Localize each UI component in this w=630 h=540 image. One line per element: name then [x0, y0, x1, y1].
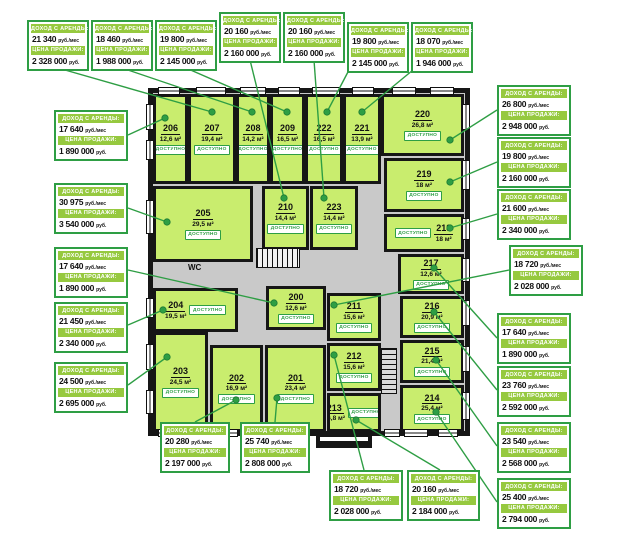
income-value: 21 340руб./мес: [31, 33, 85, 46]
price-value: 1 988 000руб.: [95, 55, 149, 68]
price-value: 2 145 000руб.: [351, 57, 405, 70]
income-label: ДОХОД С АРЕНДЫ:: [58, 114, 124, 123]
price-label: ЦЕНА ПРОДАЖИ:: [501, 392, 567, 401]
price-label: ЦЕНА ПРОДАЖИ:: [411, 496, 476, 505]
callout-room-205: ДОХОД С АРЕНДЫ: 30 975руб./мес ЦЕНА ПРОД…: [54, 183, 128, 234]
window-marker: [462, 300, 470, 326]
availability-badge: ДОСТУПНО: [316, 224, 352, 234]
price-label: ЦЕНА ПРОДАЖИ:: [58, 209, 124, 218]
floorplan-widget: 200 12,6 м² ДОСТУПНО 201 23,4 м² ДОСТУПН…: [0, 0, 630, 540]
income-value: 19 800руб./мес: [159, 33, 213, 46]
room-205[interactable]: 205 29,5 м² ДОСТУПНО: [153, 186, 253, 262]
window-marker: [404, 429, 428, 437]
callout-room-215: ДОХОД С АРЕНДЫ: 23 540руб./мес ЦЕНА ПРОД…: [497, 422, 571, 473]
room-area: 14,4 м²: [323, 215, 344, 222]
income-label: ДОХОД С АРЕНДЫ:: [513, 249, 579, 258]
availability-badge: ДОСТУПНО: [277, 394, 313, 404]
availability-badge: ДОСТУПНО: [185, 230, 221, 240]
income-value: 25 400руб./мес: [501, 491, 567, 504]
window-marker: [438, 429, 458, 437]
price-label: ЦЕНА ПРОДАЖИ:: [501, 111, 567, 120]
price-value: 3 540 000руб.: [58, 218, 124, 231]
room-area: 15,6 м²: [343, 364, 364, 371]
window-marker: [384, 429, 400, 437]
price-value: 2 592 000руб.: [501, 401, 567, 414]
room-area: 13,9 м²: [351, 136, 372, 143]
price-value: 2 028 000руб.: [333, 505, 399, 518]
income-label: ДОХОД С АРЕНДЫ:: [501, 141, 567, 150]
room-number: 223: [324, 202, 343, 213]
price-value: 2 340 000руб.: [501, 224, 567, 237]
room-number: 219: [414, 169, 433, 180]
price-value: 2 145 000руб.: [159, 55, 213, 68]
window-marker: [312, 87, 340, 95]
stairs: [381, 348, 397, 394]
room-label: 206 12,6 м²: [160, 123, 181, 142]
room-area: 19,4 м²: [201, 136, 222, 143]
income-value: 18 070руб./мес: [415, 35, 469, 48]
income-label: ДОХОД С АРЕНДЫ:: [159, 24, 213, 33]
price-value: 2 794 000руб.: [501, 513, 567, 526]
room-200[interactable]: 200 12,6 м² ДОСТУПНО: [266, 286, 326, 330]
income-value: 24 500руб./мес: [58, 375, 124, 388]
room-area: 29,5 м²: [192, 221, 213, 228]
floor-plan: 200 12,6 м² ДОСТУПНО 201 23,4 м² ДОСТУПН…: [148, 88, 470, 436]
callout-room-211: ДОХОД С АРЕНДЫ: 18 720руб./мес ЦЕНА ПРОД…: [509, 245, 583, 296]
income-value: 17 640руб./мес: [501, 326, 567, 339]
income-label: ДОХОД С АРЕНДЫ:: [58, 187, 124, 196]
callout-room-218: ДОХОД С АРЕНДЫ: 21 600руб./мес ЦЕНА ПРОД…: [497, 189, 571, 240]
room-number: 217: [421, 258, 440, 269]
room-label: 219 18 м²: [414, 169, 433, 188]
income-label: ДОХОД С АРЕНДЫ:: [164, 426, 226, 435]
window-marker: [146, 104, 154, 130]
price-value: 2 197 000руб.: [164, 457, 226, 470]
room-area: 19,5 м²: [165, 313, 186, 320]
price-value: 2 568 000руб.: [501, 457, 567, 470]
room-area: 26,8 м²: [412, 122, 433, 129]
callout-room-204: ДОХОД С АРЕНДЫ: 21 450руб./мес ЦЕНА ПРОД…: [54, 302, 128, 353]
room-number: 202: [227, 373, 246, 384]
income-label: ДОХОД С АРЕНДЫ:: [58, 366, 124, 375]
income-value: 20 160руб./мес: [411, 483, 476, 496]
room-219[interactable]: 219 18 м² ДОСТУПНО: [384, 158, 464, 212]
room-label: 211 15,6 м²: [343, 301, 364, 320]
window-marker: [462, 160, 470, 190]
room-203[interactable]: 203 24,5 м² ДОСТУПНО: [153, 332, 208, 432]
room-area: 25,4 м²: [421, 405, 442, 412]
income-value: 18 720руб./мес: [333, 483, 399, 496]
room-number: 220: [413, 109, 432, 120]
room-area: 12,6 м²: [420, 271, 441, 278]
room-area: 23,4 м²: [285, 385, 306, 392]
income-label: ДОХОД С АРЕНДЫ:: [351, 26, 405, 35]
income-value: 19 800руб./мес: [501, 150, 567, 163]
room-number: 218: [434, 223, 453, 234]
availability-badge: ДОСТУПНО: [344, 145, 380, 155]
price-value: 1 946 000руб.: [415, 57, 469, 70]
window-marker: [196, 87, 226, 95]
callout-room-222: ДОХОД С АРЕНДЫ: 19 800руб./мес ЦЕНА ПРОД…: [347, 22, 409, 73]
room-label: 210 14,4 м²: [275, 202, 296, 221]
income-value: 17 640руб./мес: [58, 123, 124, 136]
window-marker: [146, 344, 154, 370]
room-label: 223 14,4 м²: [323, 202, 344, 221]
callout-room-206: ДОХОД С АРЕНДЫ: 17 640руб./мес ЦЕНА ПРОД…: [54, 110, 128, 161]
availability-badge: ДОСТУПНО: [267, 224, 303, 234]
callout-room-214: ДОХОД С АРЕНДЫ: 25 400руб./мес ЦЕНА ПРОД…: [497, 478, 571, 529]
room-label: 220 26,8 м²: [412, 109, 433, 128]
income-value: 25 740руб./мес: [244, 435, 306, 448]
callout-room-203: ДОХОД С АРЕНДЫ: 24 500руб./мес ЦЕНА ПРОД…: [54, 362, 128, 413]
room-209[interactable]: 209 16,5 м² ДОСТУПНО: [270, 94, 305, 184]
income-value: 20 280руб./мес: [164, 435, 226, 448]
income-value: 26 800руб./мес: [501, 98, 567, 111]
income-value: 17 640руб./мес: [58, 260, 124, 273]
room-number: 208: [243, 123, 262, 134]
price-value: 2 695 000руб.: [58, 397, 124, 410]
availability-badge: ДОСТУПНО: [414, 414, 450, 424]
income-label: ДОХОД С АРЕНДЫ:: [223, 16, 277, 25]
income-value: 18 720руб./мес: [513, 258, 579, 271]
availability-badge: ДОСТУПНО: [189, 305, 225, 315]
income-label: ДОХОД С АРЕНДЫ:: [333, 474, 399, 483]
room-area: 14,2 м²: [242, 136, 263, 143]
availability-badge: ДОСТУПНО: [236, 145, 270, 155]
room-number: 209: [278, 123, 297, 134]
room-number: 211: [345, 301, 364, 312]
price-value: 2 328 000руб.: [31, 55, 85, 68]
room-label: 216 20,9 м²: [421, 301, 442, 320]
income-value: 23 540руб./мес: [501, 435, 567, 448]
window-marker: [146, 140, 154, 160]
income-value: 18 460руб./мес: [95, 33, 149, 46]
callout-room-202: ДОХОД С АРЕНДЫ: 20 280руб./мес ЦЕНА ПРОД…: [160, 422, 230, 473]
callout-room-207: ДОХОД С АРЕНДЫ: 21 340руб./мес ЦЕНА ПРОД…: [27, 20, 89, 71]
callout-room-210: ДОХОД С АРЕНДЫ: 20 160руб./мес ЦЕНА ПРОД…: [219, 12, 281, 63]
income-label: ДОХОД С АРЕНДЫ:: [501, 89, 567, 98]
room-223[interactable]: 223 14,4 м² ДОСТУПНО: [310, 186, 358, 250]
window-marker: [158, 87, 180, 95]
room-201[interactable]: 201 23,4 м² ДОСТУПНО: [265, 345, 326, 432]
price-label: ЦЕНА ПРОДАЖИ:: [223, 38, 277, 47]
room-number: 214: [422, 393, 441, 404]
window-marker: [146, 200, 154, 234]
price-label: ЦЕНА ПРОДАЖИ:: [287, 38, 341, 47]
window-marker: [240, 87, 266, 95]
room-label: 209 16,5 м²: [277, 123, 298, 142]
window-marker: [146, 298, 154, 318]
availability-badge: ДОСТУПНО: [404, 131, 440, 141]
room-label: 201 23,4 м²: [285, 373, 306, 392]
room-area: 16,8 м²: [327, 415, 345, 422]
price-label: ЦЕНА ПРОДАЖИ:: [58, 328, 124, 337]
callout-room-219: ДОХОД С АРЕНДЫ: 19 800руб./мес ЦЕНА ПРОД…: [497, 137, 571, 188]
room-area: 15,6 м²: [343, 314, 364, 321]
price-value: 2 160 000руб.: [223, 47, 277, 60]
price-label: ЦЕНА ПРОДАЖИ:: [351, 48, 405, 57]
availability-badge: ДОСТУПНО: [162, 388, 198, 398]
room-number: 201: [286, 373, 305, 384]
room-214[interactable]: 214 25,4 м² ДОСТУПНО: [400, 385, 464, 432]
room-label: 203 24,5 м²: [170, 366, 191, 385]
availability-badge: ДОСТУПНО: [278, 314, 314, 324]
room-label: 208 14,2 м²: [242, 123, 263, 142]
price-label: ЦЕНА ПРОДАЖИ:: [501, 504, 567, 513]
callout-room-201: ДОХОД С АРЕНДЫ: 25 740руб./мес ЦЕНА ПРОД…: [240, 422, 310, 473]
income-label: ДОХОД С АРЕНДЫ:: [501, 317, 567, 326]
price-value: 1 890 000руб.: [58, 145, 124, 158]
income-value: 21 450руб./мес: [58, 315, 124, 328]
room-label: 217 12,6 м²: [420, 258, 441, 277]
window-marker: [278, 87, 300, 95]
room-206[interactable]: 206 12,6 м² ДОСТУПНО: [153, 94, 188, 184]
room-label: 215 21,4 м²: [421, 346, 442, 365]
price-label: ЦЕНА ПРОДАЖИ:: [501, 215, 567, 224]
room-area: 14,4 м²: [275, 215, 296, 222]
window-marker: [462, 392, 470, 420]
room-number: 207: [202, 123, 221, 134]
price-label: ЦЕНА ПРОДАЖИ:: [501, 163, 567, 172]
room-area: 21,4 м²: [421, 358, 442, 365]
room-207[interactable]: 207 19,4 м² ДОСТУПНО: [188, 94, 236, 184]
availability-badge: ДОСТУПНО: [395, 228, 431, 238]
income-label: ДОХОД С АРЕНДЫ:: [501, 370, 567, 379]
income-value: 20 160руб./мес: [223, 25, 277, 38]
room-number: 216: [422, 301, 441, 312]
availability-badge: ДОСТУПНО: [336, 323, 372, 333]
room-area: 20,9 м²: [421, 314, 442, 321]
callout-room-209: ДОХОД С АРЕНДЫ: 19 800руб./мес ЦЕНА ПРОД…: [155, 20, 217, 71]
income-value: 19 800руб./мес: [351, 35, 405, 48]
price-label: ЦЕНА ПРОДАЖИ:: [164, 448, 226, 457]
room-212[interactable]: 212 15,6 м² ДОСТУПНО: [327, 343, 381, 391]
room-number: 200: [286, 292, 305, 303]
income-label: ДОХОД С АРЕНДЫ:: [287, 16, 341, 25]
callout-room-200: ДОХОД С АРЕНДЫ: 17 640руб./мес ЦЕНА ПРОД…: [54, 247, 128, 298]
room-217[interactable]: 217 12,6 м² ДОСТУПНО: [398, 254, 464, 294]
price-value: 2 160 000руб.: [287, 47, 341, 60]
window-marker: [462, 346, 470, 372]
stairs: [256, 248, 300, 268]
price-value: 2 184 000руб.: [411, 505, 476, 518]
window-marker: [462, 258, 470, 282]
room-area: 16,9 м²: [226, 385, 247, 392]
price-value: 1 890 000руб.: [58, 282, 124, 295]
room-number: 222: [314, 123, 333, 134]
room-208[interactable]: 208 14,2 м² ДОСТУПНО: [236, 94, 270, 184]
room-number: 206: [161, 123, 180, 134]
income-label: ДОХОД С АРЕНДЫ:: [95, 24, 149, 33]
callout-room-216: ДОХОД С АРЕНДЫ: 23 760руб./мес ЦЕНА ПРОД…: [497, 366, 571, 417]
price-label: ЦЕНА ПРОДАЖИ:: [58, 388, 124, 397]
window-marker: [430, 87, 454, 95]
availability-badge: ДОСТУПНО: [348, 408, 381, 418]
room-221[interactable]: 221 13,9 м² ДОСТУПНО: [343, 94, 381, 184]
window-marker: [146, 390, 154, 414]
income-label: ДОХОД С АРЕНДЫ:: [244, 426, 306, 435]
room-label: 213 16,8 м²: [327, 403, 345, 422]
price-label: ЦЕНА ПРОДАЖИ:: [95, 46, 149, 55]
price-value: 2 340 000руб.: [58, 337, 124, 350]
room-211[interactable]: 211 15,6 м² ДОСТУПНО: [327, 293, 381, 341]
price-label: ЦЕНА ПРОДАЖИ:: [58, 136, 124, 145]
room-222[interactable]: 222 16,5 м² ДОСТУПНО: [305, 94, 343, 184]
room-label: 205 29,5 м²: [192, 208, 213, 227]
price-label: ЦЕНА ПРОДАЖИ:: [333, 496, 399, 505]
room-label: 204 19,5 м²: [165, 300, 186, 319]
room-number: 204: [166, 300, 185, 311]
room-area: 16,5 м²: [277, 136, 298, 143]
callout-room-223: ДОХОД С АРЕНДЫ: 20 160руб./мес ЦЕНА ПРОД…: [283, 12, 345, 63]
availability-badge: ДОСТУПНО: [194, 145, 230, 155]
window-marker: [392, 87, 416, 95]
callout-room-213: ДОХОД С АРЕНДЫ: 20 160руб./мес ЦЕНА ПРОД…: [407, 470, 480, 521]
room-number: 212: [344, 351, 363, 362]
income-label: ДОХОД С АРЕНДЫ:: [501, 426, 567, 435]
price-label: ЦЕНА ПРОДАЖИ:: [31, 46, 85, 55]
callout-room-221: ДОХОД С АРЕНДЫ: 18 070руб./мес ЦЕНА ПРОД…: [411, 22, 473, 73]
room-label: 221 13,9 м²: [351, 123, 372, 142]
price-value: 2 948 000руб.: [501, 120, 567, 133]
availability-badge: ДОСТУПНО: [153, 145, 188, 155]
room-number: 215: [422, 346, 441, 357]
room-number: 203: [171, 366, 190, 377]
price-label: ЦЕНА ПРОДАЖИ:: [244, 448, 306, 457]
room-label: 200 12,6 м²: [285, 292, 306, 311]
callout-room-217: ДОХОД С АРЕНДЫ: 17 640руб./мес ЦЕНА ПРОД…: [497, 313, 571, 364]
room-area: 16,5 м²: [313, 136, 334, 143]
callout-room-220: ДОХОД С АРЕНДЫ: 26 800руб./мес ЦЕНА ПРОД…: [497, 85, 571, 136]
room-204[interactable]: 204 19,5 м² ДОСТУПНО: [153, 288, 238, 332]
income-value: 20 160руб./мес: [287, 25, 341, 38]
room-label: 222 16,5 м²: [313, 123, 334, 142]
room-area: 18 м²: [436, 236, 452, 243]
room-202[interactable]: 202 16,9 м² ДОСТУПНО: [210, 345, 263, 432]
income-label: ДОХОД С АРЕНДЫ:: [58, 251, 124, 260]
room-216[interactable]: 216 20,9 м² ДОСТУПНО: [400, 296, 464, 338]
window-marker: [352, 87, 374, 95]
income-label: ДОХОД С АРЕНДЫ:: [415, 26, 469, 35]
room-number: 205: [193, 208, 212, 219]
income-label: ДОХОД С АРЕНДЫ:: [31, 24, 85, 33]
price-label: ЦЕНА ПРОДАЖИ:: [415, 48, 469, 57]
price-value: 2 160 000руб.: [501, 172, 567, 185]
price-value: 2 028 000руб.: [513, 280, 579, 293]
price-label: ЦЕНА ПРОДАЖИ:: [513, 271, 579, 280]
income-label: ДОХОД С АРЕНДЫ:: [501, 193, 567, 202]
callout-room-208: ДОХОД С АРЕНДЫ: 18 460руб./мес ЦЕНА ПРОД…: [91, 20, 153, 71]
price-label: ЦЕНА ПРОДАЖИ:: [58, 273, 124, 282]
room-label: 218 18 м²: [434, 223, 453, 242]
room-area: 24,5 м²: [170, 379, 191, 386]
room-213[interactable]: 213 16,8 м² ДОСТУПНО: [327, 393, 381, 432]
price-label: ЦЕНА ПРОДАЖИ:: [501, 339, 567, 348]
price-value: 2 808 000руб.: [244, 457, 306, 470]
income-label: ДОХОД С АРЕНДЫ:: [501, 482, 567, 491]
room-220[interactable]: 220 26,8 м² ДОСТУПНО: [381, 94, 464, 156]
income-value: 23 760руб./мес: [501, 379, 567, 392]
availability-badge: ДОСТУПНО: [413, 280, 449, 290]
room-218[interactable]: 218 18 м² ДОСТУПНО: [384, 214, 464, 252]
room-label: 207 19,4 м²: [201, 123, 222, 142]
room-label: 214 25,4 м²: [421, 393, 442, 412]
window-marker: [462, 104, 470, 130]
room-number: 221: [352, 123, 371, 134]
price-value: 1 890 000руб.: [501, 348, 567, 361]
income-label: ДОХОД С АРЕНДЫ:: [58, 306, 124, 315]
income-value: 21 600руб./мес: [501, 202, 567, 215]
room-area: 12,6 м²: [285, 305, 306, 312]
room-label: 212 15,6 м²: [343, 351, 364, 370]
income-label: ДОХОД С АРЕНДЫ:: [411, 474, 476, 483]
availability-badge: ДОСТУПНО: [270, 145, 305, 155]
room-210[interactable]: 210 14,4 м² ДОСТУПНО: [262, 186, 309, 250]
entrance-porch: [316, 432, 372, 448]
callout-room-212: ДОХОД С АРЕНДЫ: 18 720руб./мес ЦЕНА ПРОД…: [329, 470, 403, 521]
room-number: 213: [327, 403, 344, 414]
room-area: 12,6 м²: [160, 136, 181, 143]
price-label: ЦЕНА ПРОДАЖИ:: [159, 46, 213, 55]
room-215[interactable]: 215 21,4 м² ДОСТУПНО: [400, 340, 464, 383]
room-number: 210: [276, 202, 295, 213]
availability-badge: ДОСТУПНО: [414, 367, 450, 377]
availability-badge: ДОСТУПНО: [336, 373, 372, 383]
availability-badge: ДОСТУПНО: [414, 323, 450, 333]
room-label: 202 16,9 м²: [226, 373, 247, 392]
availability-badge: ДОСТУПНО: [218, 394, 254, 404]
wc-label: WC: [188, 263, 201, 272]
income-value: 30 975руб./мес: [58, 196, 124, 209]
window-marker: [462, 218, 470, 240]
price-label: ЦЕНА ПРОДАЖИ:: [501, 448, 567, 457]
availability-badge: ДОСТУПНО: [306, 145, 342, 155]
room-area: 18 м²: [416, 182, 432, 189]
availability-badge: ДОСТУПНО: [406, 191, 442, 201]
